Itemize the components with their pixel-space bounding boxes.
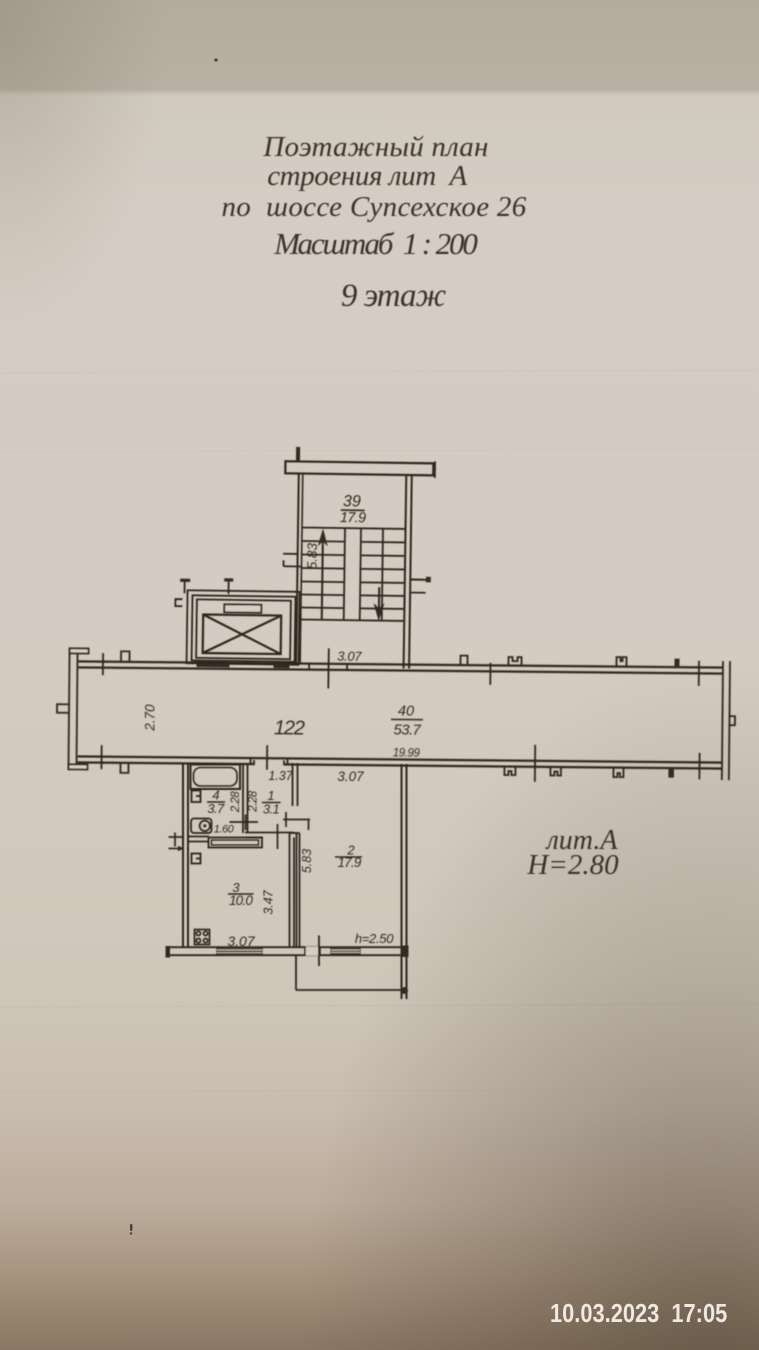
svg-text:53.7: 53.7 [393,721,421,738]
svg-text:3.47: 3.47 [262,889,276,914]
svg-text:строения лит А: строения лит А [267,160,467,192]
svg-text:3.7: 3.7 [207,801,225,816]
svg-text:122: 122 [274,717,305,739]
svg-text:39: 39 [343,493,361,510]
svg-text:9 этаж: 9 этаж [341,278,447,314]
svg-text:Поэтажный план: Поэтажный план [262,131,488,163]
svg-text:19.99: 19.99 [393,747,421,759]
svg-text:3.1: 3.1 [263,802,280,817]
svg-text:Масштаб 1 : 200: Масштаб 1 : 200 [273,226,478,261]
svg-text:40: 40 [398,703,414,719]
svg-text:17.9: 17.9 [340,510,366,526]
svg-text:3.07: 3.07 [337,649,362,664]
svg-text:10.03.2023 17:05: 10.03.2023 17:05 [550,1299,727,1328]
svg-text:5.83: 5.83 [300,849,314,873]
svg-text:10.0: 10.0 [229,893,253,908]
svg-text:1.37: 1.37 [268,769,293,783]
svg-text:Н=2.80: Н=2.80 [526,849,619,881]
svg-text:2.70: 2.70 [142,704,157,732]
svg-text:5.83: 5.83 [304,542,319,569]
svg-text:по шоссе Супсехское 26: по шоссе Супсехское 26 [221,191,526,223]
svg-text:2.28: 2.28 [230,791,242,813]
svg-text:2.28: 2.28 [248,790,260,812]
svg-text:h=2.50: h=2.50 [355,931,394,946]
svg-text:1.60: 1.60 [214,824,235,836]
svg-text:3.07: 3.07 [337,769,364,784]
